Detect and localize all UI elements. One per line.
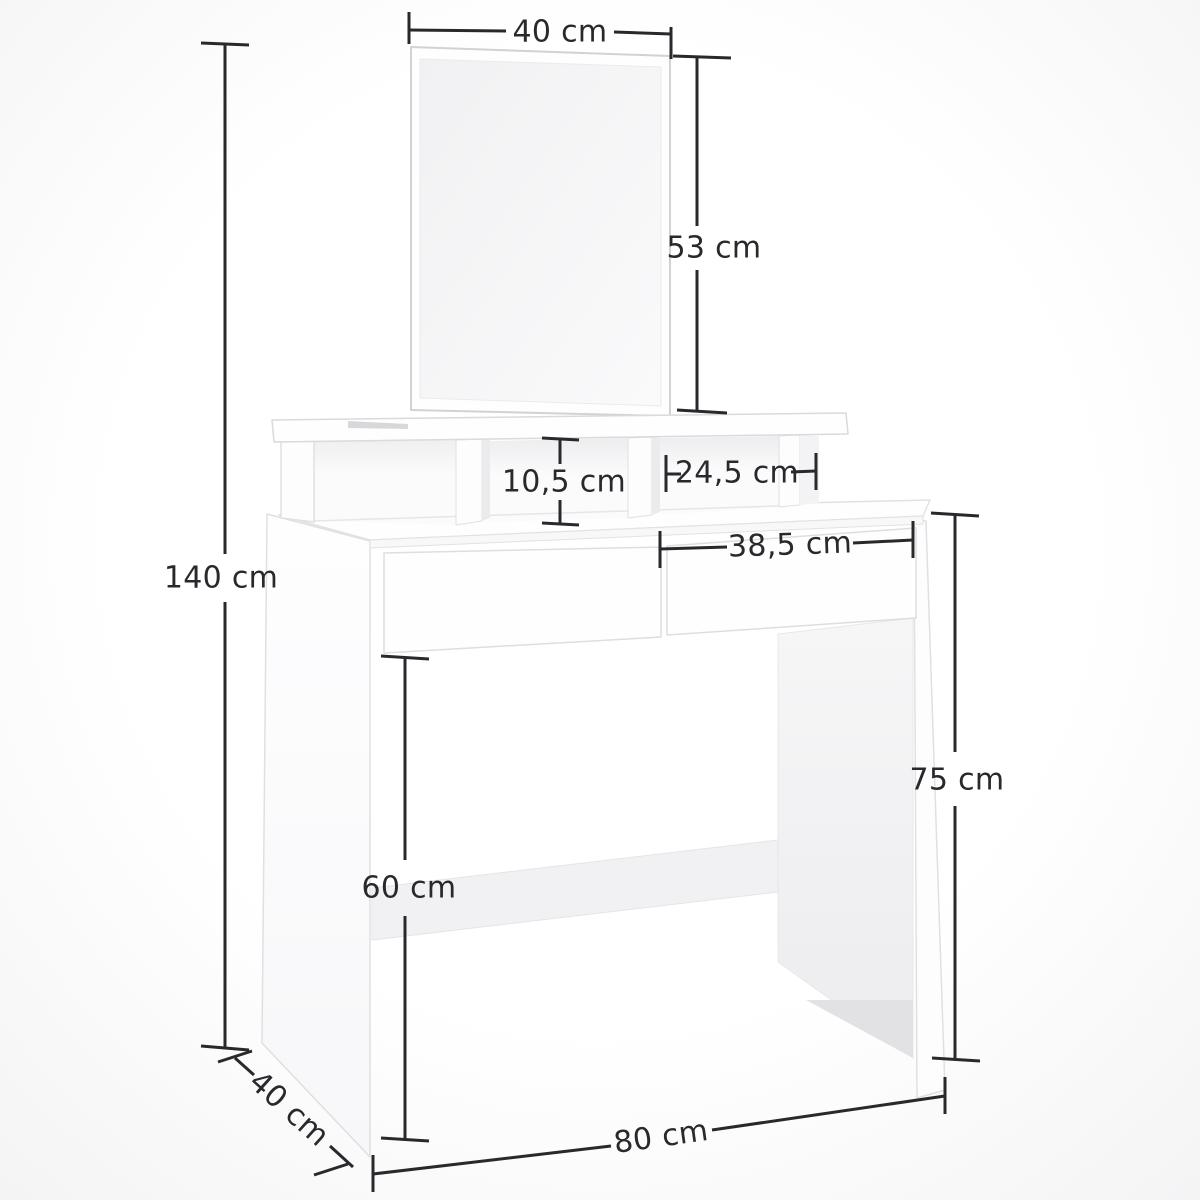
organizer-left-post: [281, 430, 314, 522]
right-panel-inner-face: [778, 618, 913, 1058]
right-panel-floor-wedge: [806, 1000, 913, 1058]
dim-segment: [660, 547, 727, 549]
dim-label-table-height: 75 cm: [910, 763, 1005, 798]
drawer-left: [384, 547, 661, 653]
dim-label-compartment-width: 24,5 cm: [675, 456, 799, 491]
dim-label-drawer-width: 38,5 cm: [727, 525, 852, 564]
dim-tick: [201, 1046, 249, 1050]
dim-width: 80 cm: [373, 1077, 945, 1192]
left-panel: [262, 514, 370, 1157]
dim-label-mirror-width: 40 cm: [513, 15, 608, 50]
organizer-divider-a-side: [482, 439, 490, 521]
dim-tick: [218, 1051, 252, 1062]
organizer-divider-b: [628, 437, 652, 518]
dim-compartment-width: 24,5 cm: [666, 453, 816, 492]
dim-segment: [373, 1146, 611, 1174]
product-dimension-diagram: 40 cm 53 cm 10,5 cm 24,5 cm 38,5 cm 140 …: [0, 0, 1200, 1200]
dim-label-mirror-height: 53 cm: [667, 231, 762, 266]
dim-tick: [542, 523, 579, 525]
mirror-glass: [420, 59, 661, 406]
dim-label-total-height: 140 cm: [164, 561, 278, 596]
dim-tick: [201, 43, 249, 45]
dim-tick: [677, 410, 727, 413]
dim-tick: [381, 1138, 429, 1141]
dim-mirror-height: 53 cm: [667, 56, 762, 413]
dim-tick: [542, 438, 579, 440]
organizer-divider-b-side: [652, 437, 660, 515]
dim-total-height: 140 cm: [164, 43, 278, 1050]
dim-label-legroom-height: 60 cm: [362, 871, 457, 906]
dim-segment: [409, 30, 506, 31]
dim-segment: [712, 1096, 945, 1130]
dim-legroom-height: 60 cm: [362, 656, 457, 1141]
dim-segment: [330, 1146, 353, 1167]
dressing-table-illustration: [262, 47, 945, 1157]
right-panel-front-edge: [914, 519, 945, 1098]
organizer-divider-a: [456, 439, 482, 525]
dim-tick: [314, 1164, 348, 1175]
compartment-left: [314, 433, 456, 525]
dim-tick: [673, 56, 731, 58]
dim-label-compartment-height: 10,5 cm: [502, 465, 626, 500]
dim-segment: [614, 32, 671, 34]
dim-label-width: 80 cm: [612, 1113, 711, 1161]
dim-segment: [235, 1058, 254, 1075]
